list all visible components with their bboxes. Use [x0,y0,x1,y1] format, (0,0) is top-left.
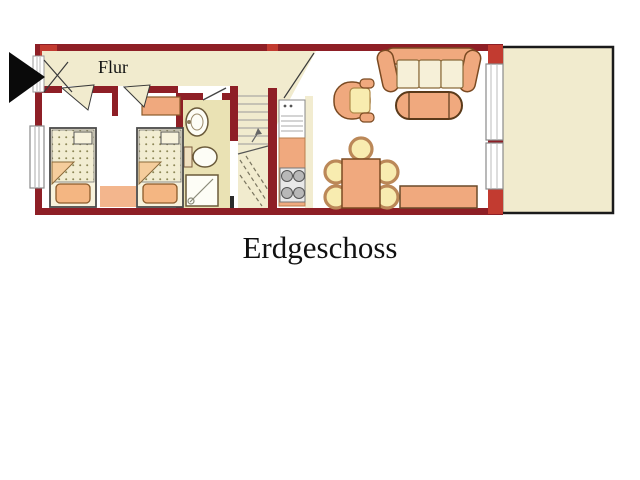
right-window-lower [486,143,503,189]
rug [100,186,136,207]
terrace [502,47,613,213]
left-window [30,126,44,188]
toilet-tank [184,147,192,167]
right-windows [486,64,503,189]
bathroom [183,88,230,208]
dining-table [342,159,380,208]
bed-right [137,128,183,207]
kitchen-counter-edge [305,96,313,208]
floor-plan-page: Flur Erdgeschoss [0,0,640,480]
floor-plan-drawing: Flur Erdgeschoss [0,0,640,480]
page-title: Erdgeschoss [243,230,398,265]
sideboard [400,186,477,208]
staircase [238,88,268,208]
hallway-label: Flur [98,57,128,77]
wall-corner-bottom-right [488,188,503,214]
right-window-upper [486,64,503,140]
pillow [56,184,90,203]
toilet [193,147,217,167]
bed-left [50,128,96,207]
dresser [142,97,180,115]
pillow [143,184,177,203]
armchair [334,79,374,122]
sofa [376,48,482,93]
kitchen [279,96,313,208]
coffee-table [396,92,462,119]
wall-corner-top-right [488,45,503,66]
